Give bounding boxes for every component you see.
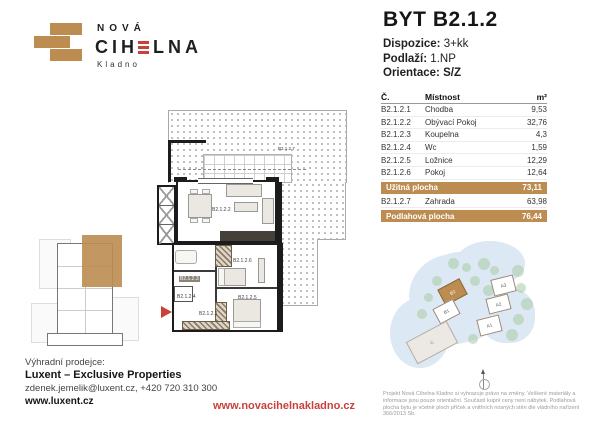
chair bbox=[202, 218, 210, 223]
brick-icon bbox=[50, 49, 82, 61]
tree-icon bbox=[448, 258, 459, 269]
entrance-arrow-icon bbox=[161, 306, 172, 318]
sofa bbox=[226, 184, 262, 197]
chair bbox=[190, 218, 198, 223]
seller-name: Luxent – Exclusive Properties bbox=[25, 369, 217, 382]
table-row: B2.1.2.1Chodba9,53 bbox=[381, 104, 547, 117]
floor-plan: B2.1.2.7 B2.1.2.2 bbox=[150, 90, 350, 345]
chair bbox=[190, 189, 198, 194]
spec-podlazi: Podlaží: 1.NP bbox=[383, 52, 468, 67]
inner-wall bbox=[174, 270, 215, 272]
kitchen-counter bbox=[220, 231, 275, 241]
building-outline bbox=[47, 333, 123, 346]
unit-title: BYT B2.1.2 bbox=[383, 8, 498, 32]
legal-disclaimer: Projekt Nová Cihelna Kladno si vyhrazuje… bbox=[383, 391, 585, 418]
hall-label: B2.1.2.1 bbox=[199, 311, 218, 317]
table-header: Č. Místnost m² bbox=[381, 90, 547, 104]
living-room-label: B2.1.2.2 bbox=[212, 207, 231, 213]
seller-website-link[interactable]: www.luxent.cz bbox=[25, 395, 217, 408]
table-row: B2.1.2.3Koupelna4,3 bbox=[381, 129, 547, 142]
inner-wall bbox=[215, 287, 281, 289]
garden-border bbox=[317, 239, 345, 240]
compass-north-tip bbox=[481, 369, 485, 374]
table-row: B2.1.2.5Ložnice12,29 bbox=[381, 154, 547, 167]
tree-icon bbox=[490, 266, 499, 275]
table-row: B2.1.2.2Obývací Pokoj32,76 bbox=[381, 117, 547, 130]
logo-line-cihelna: CIHLNA bbox=[95, 37, 202, 58]
brand-logo: NOVÁ CIHLNA Kladno bbox=[28, 10, 208, 72]
tree-icon bbox=[417, 309, 427, 319]
usable-area-row: Užitná plocha73,11 bbox=[381, 182, 547, 194]
appliance bbox=[159, 187, 174, 206]
spec-orientace: Orientace: S/Z bbox=[383, 66, 468, 81]
wall-segment bbox=[174, 177, 187, 182]
bathtub bbox=[175, 250, 197, 264]
logo-line-nova: NOVÁ bbox=[97, 23, 146, 34]
tree-icon bbox=[521, 298, 533, 310]
room-label: B2.1.2.6 bbox=[233, 258, 252, 264]
garden-wall bbox=[168, 140, 171, 182]
unit-highlight bbox=[82, 235, 122, 287]
logo-city: Kladno bbox=[97, 60, 140, 69]
chair bbox=[202, 189, 210, 194]
brick-icon bbox=[34, 36, 70, 48]
bathroom-label: B2.1.2.3 bbox=[179, 276, 200, 282]
pillow bbox=[218, 268, 225, 286]
appliance bbox=[159, 225, 174, 244]
utility-closet bbox=[157, 185, 176, 245]
tree-icon bbox=[432, 276, 442, 286]
armchair bbox=[262, 198, 274, 224]
outer-wall bbox=[277, 182, 282, 332]
dining-table bbox=[188, 194, 212, 218]
tree-icon bbox=[512, 265, 524, 277]
room-table: Č. Místnost m² B2.1.2.1Chodba9,53 B2.1.2… bbox=[381, 90, 547, 224]
coffee-table bbox=[234, 202, 258, 212]
tree-icon bbox=[516, 283, 526, 293]
terrace-boundary-line bbox=[178, 169, 306, 170]
table-row: B2.1.2.6Pokoj12,64 bbox=[381, 167, 547, 180]
tree-icon bbox=[506, 329, 518, 341]
table-row: B2.1.2.4Wc1,59 bbox=[381, 142, 547, 155]
tree-icon bbox=[470, 276, 480, 286]
appliance bbox=[159, 206, 174, 225]
wardrobe bbox=[215, 245, 232, 267]
compass-circle bbox=[479, 379, 490, 390]
garden-label: B2.1.2.7 bbox=[278, 146, 295, 151]
rooms-block bbox=[172, 243, 283, 332]
bedroom-label: B2.1.2.5 bbox=[238, 295, 257, 301]
garden-area bbox=[280, 182, 346, 240]
brick-e-icon bbox=[138, 41, 149, 54]
wall-hatch bbox=[182, 321, 230, 330]
key-plan bbox=[25, 233, 140, 351]
tree-icon bbox=[468, 334, 478, 344]
wc-label: B2.1.2.4 bbox=[177, 294, 196, 300]
site-plan: B2 B1 A3 A2 A1 C bbox=[385, 233, 595, 403]
seller-contact[interactable]: zdenek.jemelik@luxent.cz, +420 720 310 3… bbox=[25, 382, 217, 395]
seller-label: Výhradní prodejce: bbox=[25, 356, 217, 369]
tree-icon bbox=[478, 258, 490, 270]
garden-wall bbox=[168, 140, 206, 143]
brick-icon bbox=[50, 23, 82, 35]
tree-icon bbox=[424, 293, 433, 302]
tree-icon bbox=[462, 263, 471, 272]
unit-specs: Dispozice: 3+kk Podlaží: 1.NP Orientace:… bbox=[383, 37, 468, 81]
tree-icon bbox=[513, 314, 524, 325]
brochure-page: NOVÁ CIHLNA Kladno BYT B2.1.2 Dispozice:… bbox=[0, 0, 600, 423]
pillows bbox=[233, 321, 261, 328]
project-website-link[interactable]: www.novacihelnakladno.cz bbox=[213, 400, 355, 412]
seller-contact-block: Výhradní prodejce: Luxent – Exclusive Pr… bbox=[25, 356, 217, 408]
floor-area-row: Podlahová plocha76,44 bbox=[381, 210, 547, 222]
garden-area bbox=[280, 240, 318, 306]
spec-dispozice: Dispozice: 3+kk bbox=[383, 37, 468, 52]
table-row-garden: B2.1.2.7Zahrada63,98 bbox=[381, 196, 547, 209]
cabinet bbox=[258, 258, 265, 283]
